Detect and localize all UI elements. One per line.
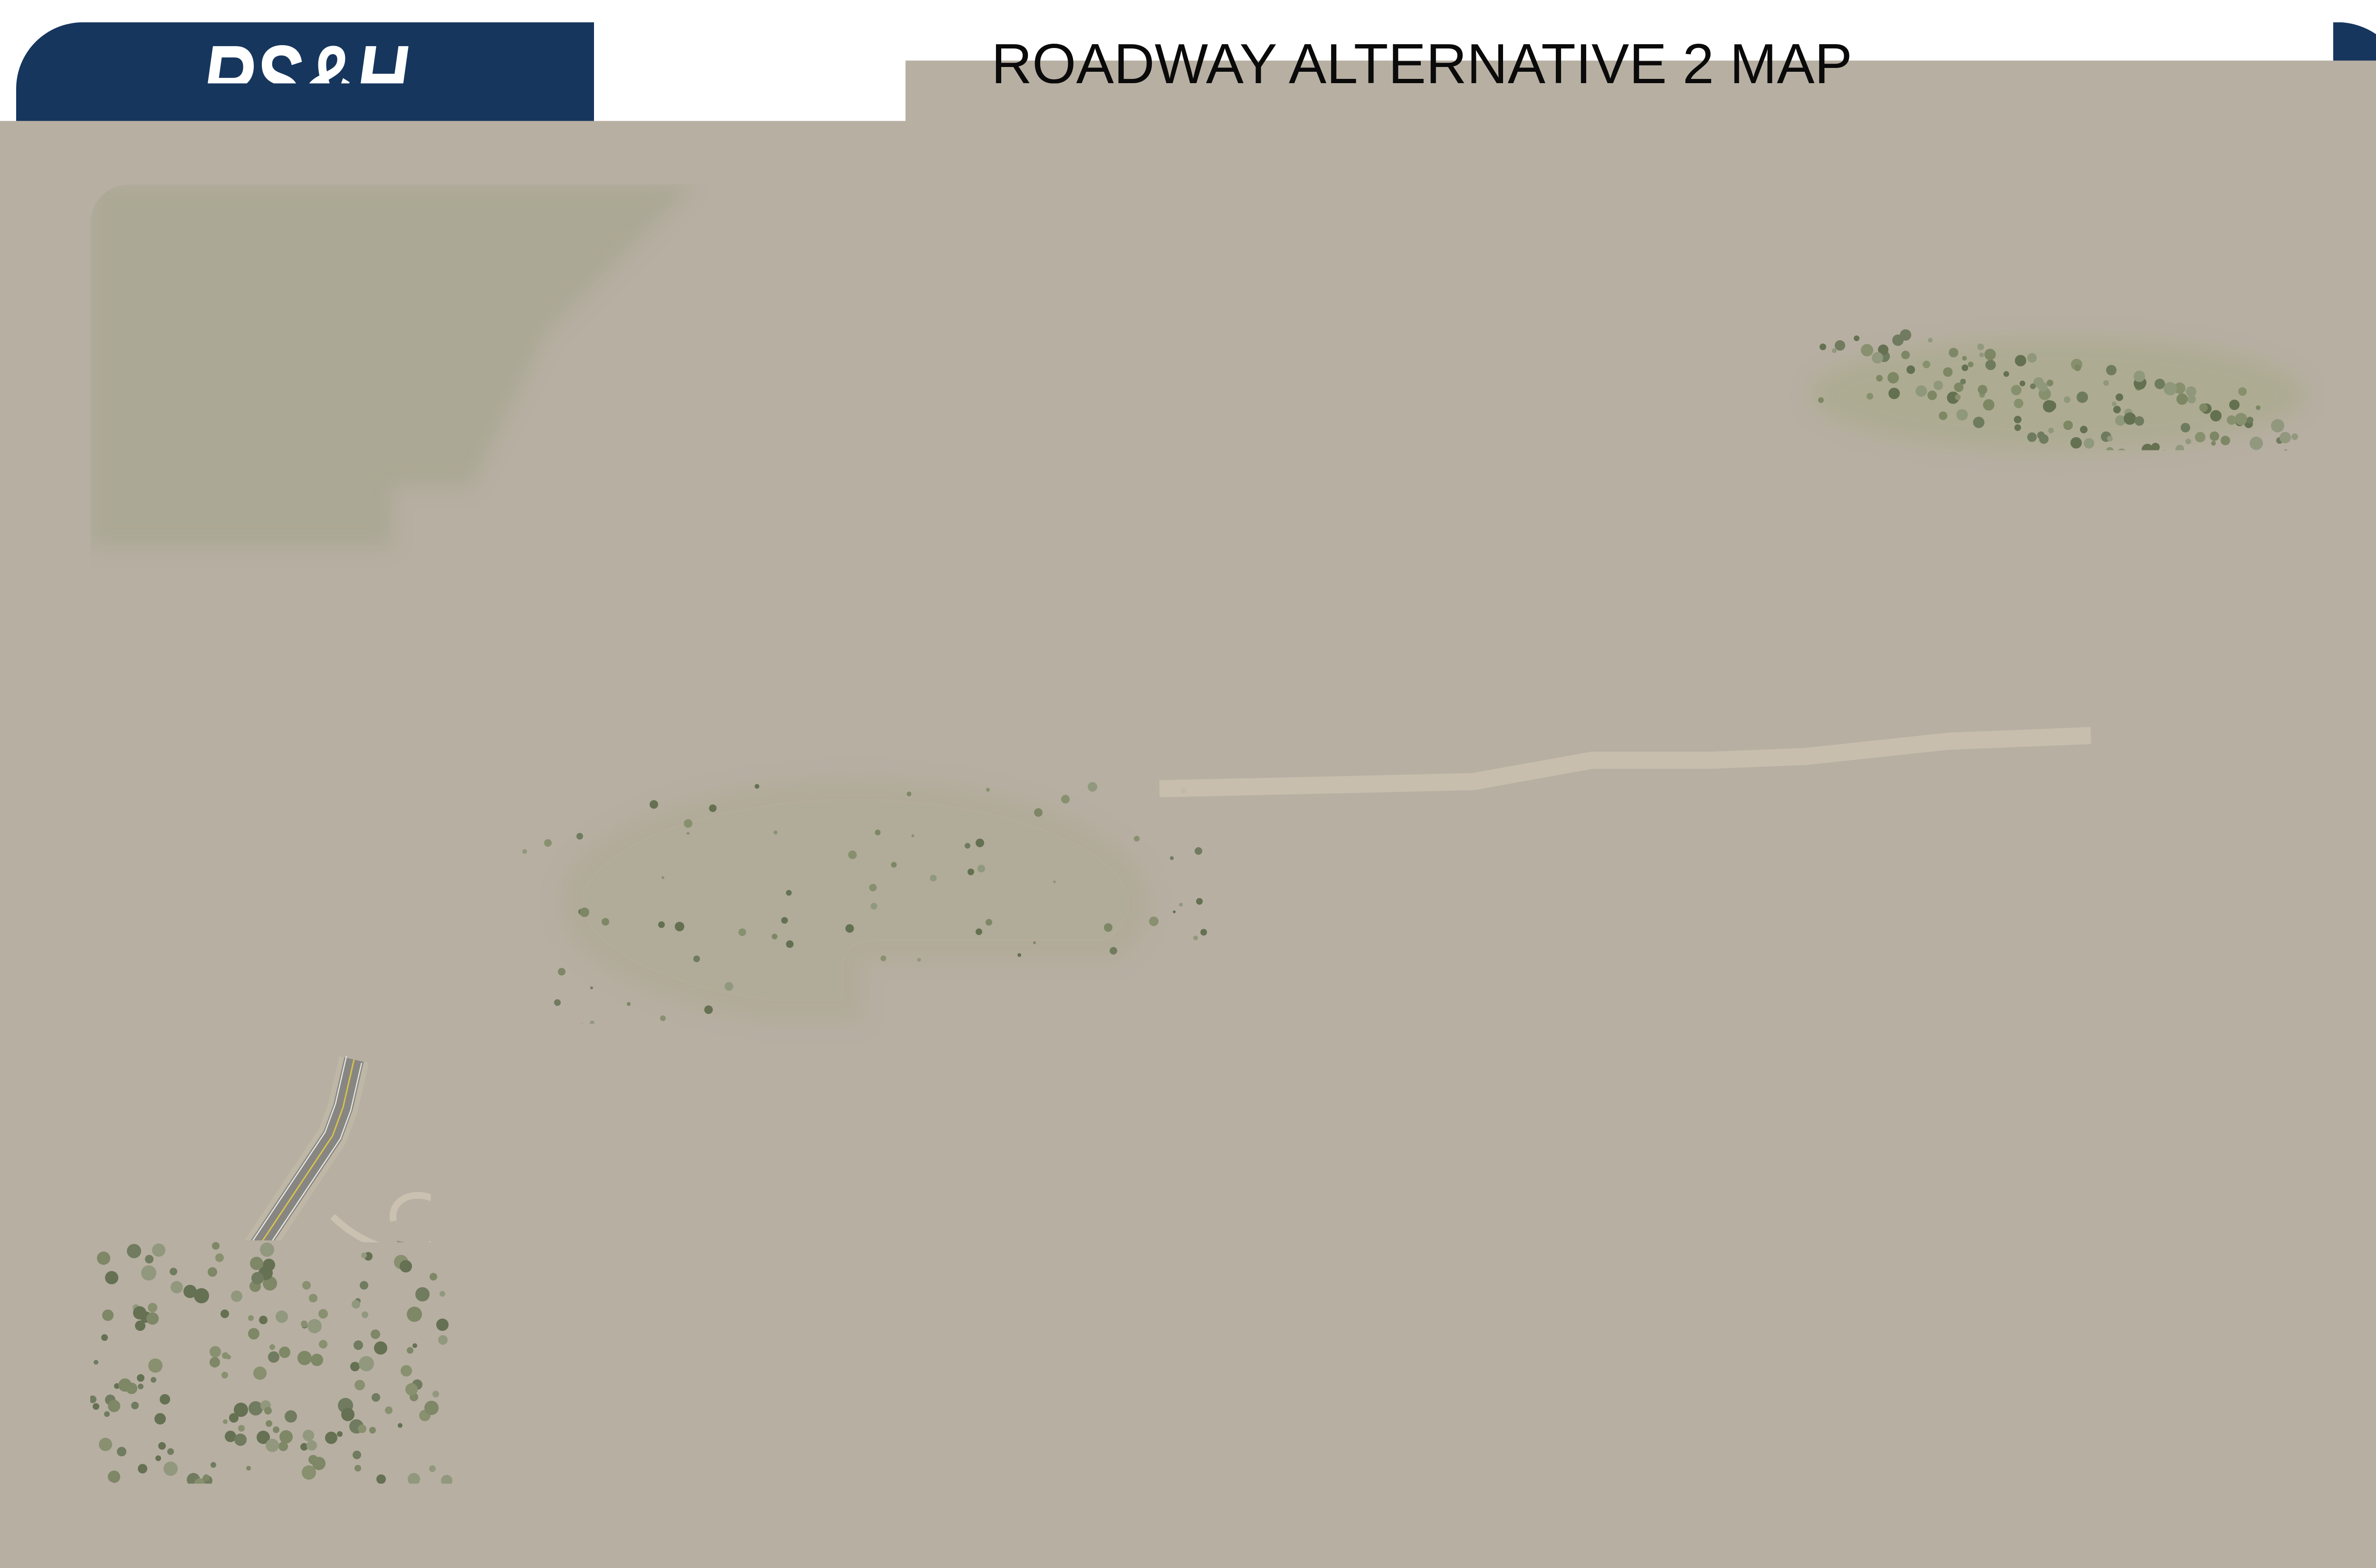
svg-text:Scale: 1" = 200': Scale: 1" = 200' (1366, 1426, 1512, 1449)
svg-text:N: N (2251, 1331, 2288, 1355)
svg-text:Subdivision Line: Subdivision Line (2144, 1121, 2282, 1142)
svg-text:TO: TO (2253, 659, 2275, 677)
svg-text:RS&H: RS&H (202, 24, 409, 137)
svg-text:Map Legend: Map Legend (2109, 1072, 2221, 1094)
svg-text:MAR 2026: MAR 2026 (2035, 1520, 2205, 1561)
svg-text:Grigs Rd. Paving Project - Pha: Grigs Rd. Paving Project - Phase 2 (1112, 94, 1732, 138)
svg-text:REGION: REGION (1682, 982, 1740, 999)
svg-text:Inside Curve: Inside Curve (915, 1416, 1043, 1442)
svg-text:B: B (2128, 691, 2150, 706)
svg-text:300': 300' (2222, 1369, 2257, 1390)
svg-text:0': 0' (2083, 1369, 2098, 1390)
svg-text:Median Concrete: Median Concrete (2144, 1179, 2289, 1200)
svg-text:Scale: 1"= 300': Scale: 1"= 300' (2100, 1419, 2227, 1440)
svg-text:REGIONAL TRAILHEAD: REGIONAL TRAILHEAD (627, 883, 784, 899)
svg-text:DISCLAIMER: These displays are: DISCLAIMER: These displays are meant to … (114, 1535, 829, 1550)
svg-text:PARKING LOT: PARKING LOT (658, 902, 753, 918)
svg-text:PROPOSED RECREATIONAL: PROPOSED RECREATIONAL (1610, 962, 1811, 979)
svg-text:BEGINNING OF PROJECT: BEGINNING OF PROJECT (516, 1186, 696, 1203)
svg-text:TIE-IN TO PHASE 1: TIE-IN TO PHASE 1 (539, 1206, 672, 1223)
svg-text:ROADWAY ALTERNATIVE 2 MAP: ROADWAY ALTERNATIVE 2 MAP (991, 32, 1852, 96)
svg-text:TIE-IN TO EXIST.: TIE-IN TO EXIST. (2036, 919, 2148, 935)
svg-text:EAST WEST: EAST WEST (664, 864, 747, 880)
svg-text:B: B (2128, 760, 2150, 774)
svg-text:SOUTHRIDGE: SOUTHRIDGE (2210, 678, 2318, 696)
svg-text:END OF PROJECT: END OF PROJECT (2030, 900, 2154, 916)
svg-text:Scale: 1" = 200': Scale: 1" = 200' (906, 1446, 1052, 1470)
svg-text:Parking: Parking (2163, 1249, 2228, 1270)
svg-text:Future Rec. Area: Future Rec. Area (2144, 1228, 2288, 1249)
svg-text:Roundabout: Roundabout (1376, 1397, 1501, 1422)
svg-text:CONC. PAVEMENT: CONC. PAVEMENT (2029, 938, 2155, 954)
svg-text:150': 150' (2150, 1369, 2185, 1390)
